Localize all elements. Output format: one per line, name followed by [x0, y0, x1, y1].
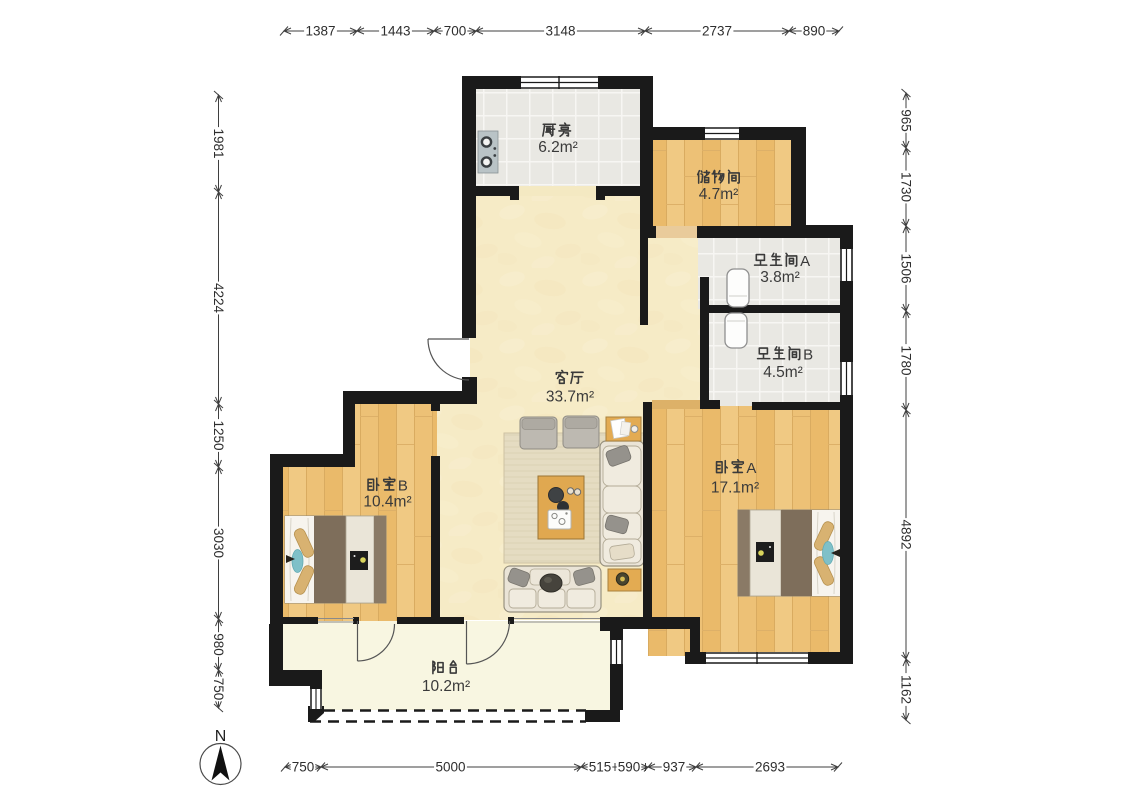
svg-text:A: A — [746, 460, 756, 477]
svg-text:N: N — [215, 728, 227, 745]
svg-text:965: 965 — [898, 109, 913, 132]
svg-text:B: B — [803, 347, 813, 364]
svg-text:937: 937 — [663, 760, 686, 775]
svg-text:1981: 1981 — [211, 128, 226, 158]
svg-text:2737: 2737 — [702, 24, 732, 39]
svg-text:33.7m²: 33.7m² — [546, 389, 594, 406]
svg-text:4224: 4224 — [211, 283, 226, 314]
svg-text:1443: 1443 — [380, 24, 410, 39]
svg-text:4.7m²: 4.7m² — [699, 186, 739, 203]
svg-text:1162: 1162 — [898, 675, 913, 704]
svg-text:5000: 5000 — [435, 760, 465, 775]
svg-text:10.4m²: 10.4m² — [363, 494, 411, 511]
svg-text:3.8m²: 3.8m² — [760, 269, 800, 286]
svg-text:1780: 1780 — [898, 345, 913, 375]
svg-text:2693: 2693 — [755, 760, 785, 775]
svg-text:515: 515 — [589, 760, 612, 775]
svg-text:1387: 1387 — [305, 24, 335, 39]
svg-text:1506: 1506 — [898, 253, 913, 283]
svg-text:10.2m²: 10.2m² — [422, 678, 470, 695]
svg-text:B: B — [398, 478, 408, 495]
svg-text:890: 890 — [803, 24, 826, 39]
svg-text:700: 700 — [444, 24, 467, 39]
svg-text:3030: 3030 — [211, 528, 226, 558]
svg-text:6.2m²: 6.2m² — [538, 139, 578, 156]
svg-text:1730: 1730 — [898, 172, 913, 202]
svg-text:17.1m²: 17.1m² — [711, 480, 759, 497]
svg-text:3148: 3148 — [545, 24, 575, 39]
svg-text:1250: 1250 — [211, 420, 226, 450]
svg-text:750: 750 — [211, 678, 226, 701]
svg-text:4.5m²: 4.5m² — [763, 364, 803, 381]
svg-text:750: 750 — [292, 760, 315, 775]
svg-text:4892: 4892 — [898, 519, 913, 549]
svg-text:590: 590 — [618, 760, 641, 775]
svg-text:A: A — [800, 253, 810, 270]
svg-text:980: 980 — [211, 633, 226, 656]
